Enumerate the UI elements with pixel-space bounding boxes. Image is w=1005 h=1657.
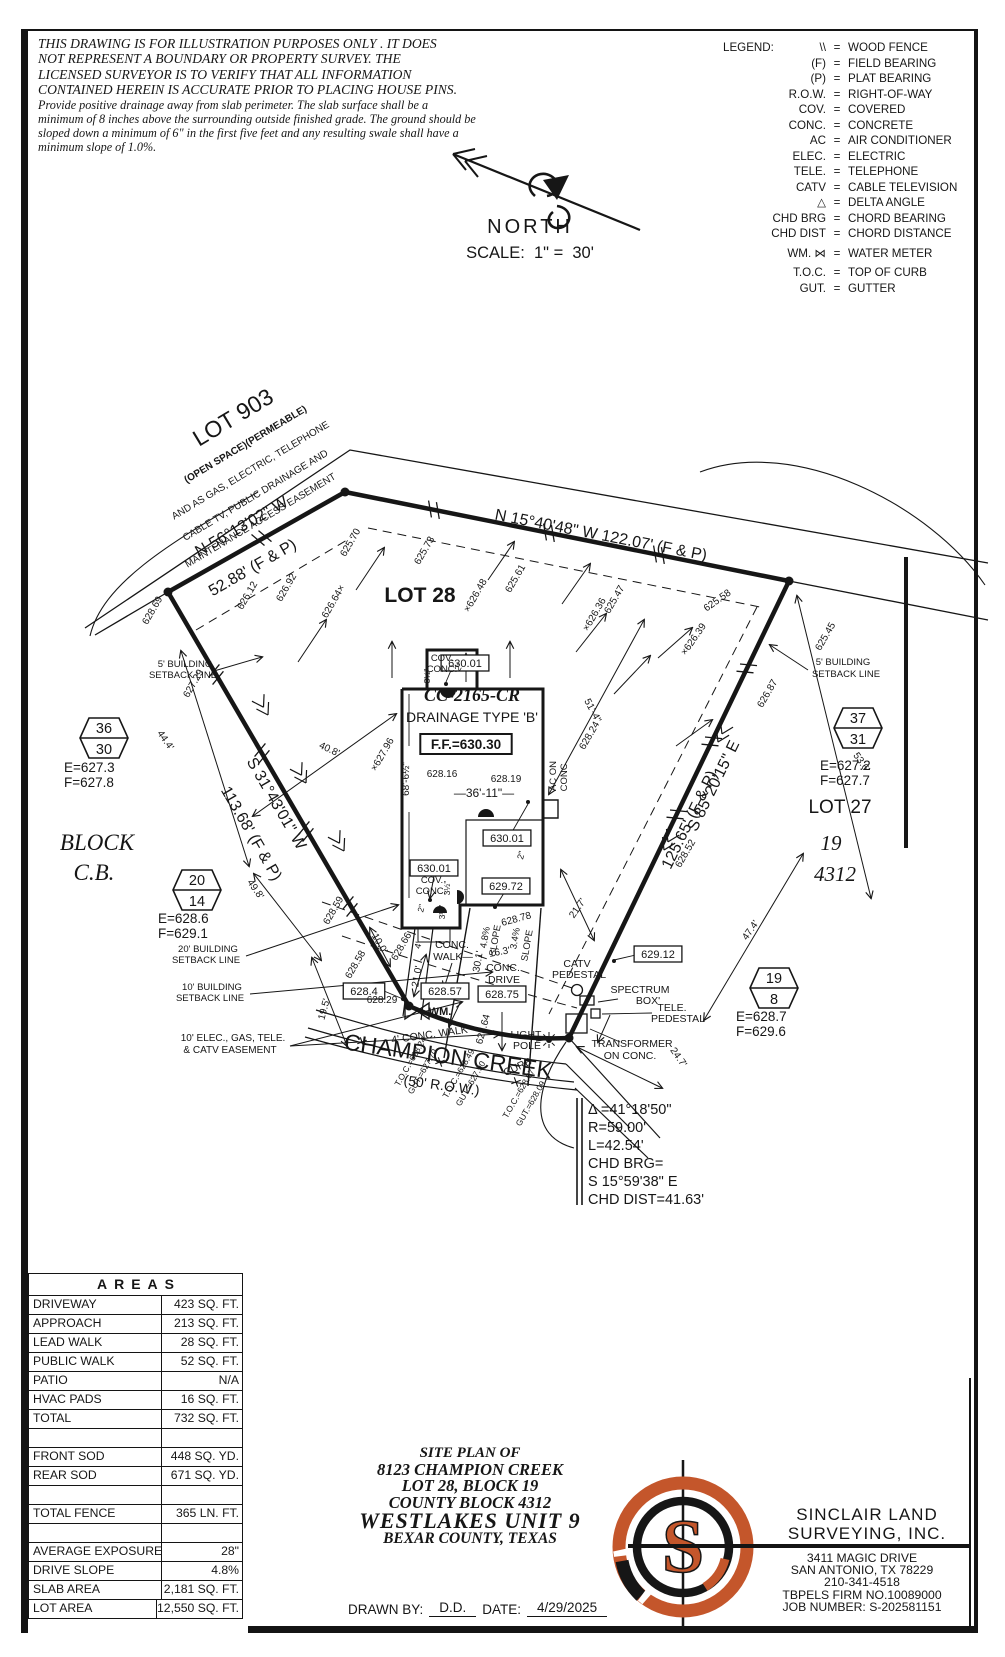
areas-table-row: APPROACH213 SQ. FT. [29,1314,242,1333]
areas-row-label: LOT AREA [29,1600,156,1618]
drawing-line [602,1013,652,1014]
flow-chevron [252,694,274,718]
areas-row-label: SLAB AREA [29,1581,161,1599]
areas-table-row: TOTAL732 SQ. FT. [29,1409,242,1428]
drawing-label: AC ON [548,761,559,791]
drawing-label: 626.64× [320,583,348,620]
elevation-e-label: E=628.6 [158,911,209,926]
drawing-label: 3½" [442,881,452,896]
drawing-label: 10' BUILDING [182,982,242,993]
drawing-label: 2" [415,903,427,913]
drawing-label: SETBACK LINE [176,993,244,1004]
areas-row-label [29,1486,161,1504]
light-pole-icon [546,1037,552,1043]
areas-row-value: 213 SQ. FT. [161,1315,242,1333]
elevation-f-label: F=629.1 [158,926,208,941]
drawing-label: 4312 [814,862,857,886]
drawing-label: 628.16 [427,769,458,780]
drawing-label: 49.8' [244,878,265,902]
drawing-label: 40.8' [317,740,341,759]
flow-chevron [290,762,312,786]
areas-table-row: DRIVEWAY423 SQ. FT. [29,1295,242,1314]
pedestal-icon [572,985,583,996]
drawing-label: 44.4' [154,729,175,753]
areas-row-value [161,1486,242,1504]
drawing-label: & CATV EASEMENT [183,1045,276,1056]
areas-row-label: TOTAL FENCE [29,1505,161,1523]
corner-dot [164,588,173,597]
door-swing-mark [457,890,464,904]
elevation-f-label: F=627.7 [820,773,870,788]
plan-title-line: BEXAR COUNTY, TEXAS [290,1531,650,1548]
elevation-f-label: F=627.8 [64,775,114,790]
drawing-label: 628.29 [367,995,398,1006]
areas-row-value: N/A [161,1372,242,1390]
drawing-arrow [254,874,321,960]
areas-table-row: REAR SOD671 SQ. YD. [29,1466,242,1485]
areas-table-row: TOTAL FENCE365 LN. FT. [29,1504,242,1523]
corner-dot [341,488,350,497]
lot-hex-top: 19 [766,971,782,987]
drawing-label: CONC. [559,761,570,792]
areas-row-value: 732 SQ. FT. [161,1410,242,1428]
drawing-label: CHD BRG= [588,1156,663,1172]
areas-table-row: HVAC PADS16 SQ. FT. [29,1390,242,1409]
drawing-arrow [676,720,712,746]
drawing-label: SETBACK LINE [172,955,240,966]
drawing-label: 10' ELEC., GAS, TELE. [181,1033,286,1044]
boxed-elevation-text: 628.75 [485,989,519,1001]
elevation-e-label: E=627.3 [64,760,115,775]
areas-table-row [29,1428,242,1447]
areas-row-value: 28" [161,1543,242,1561]
drawing-label: 3½" [437,905,447,920]
drawing-label: BLOCK [60,830,136,855]
areas-table-row: PATION/A [29,1371,242,1390]
firm-address-line: JOB NUMBER: S-202581151 [742,1601,982,1613]
firm-address-line: 210-341-4518 [742,1576,982,1588]
drawing-label: 628.69 [140,594,165,626]
drawing-label: CHD DIST=41.63' [588,1192,704,1208]
drawing-label: LOT 27 [808,797,871,818]
drawing-label: TRANSFORMER [591,1038,673,1050]
firm-name: SINCLAIR LANDSURVEYING, INC. [752,1506,982,1543]
drawing-label: LOT 28 [384,584,456,607]
lot-hex-top: 37 [850,711,866,727]
areas-table-row [29,1485,242,1504]
drawing-label: 628.64 [474,1013,493,1046]
boxed-elevation-text: 629.72 [489,881,523,893]
drawing-label: 628.59 [321,894,346,926]
lot-hex-top: 36 [96,721,112,737]
door-swing-mark [478,809,494,817]
drawing-label: 626.92 [274,571,299,603]
drawing-label: S 15°59'38" E [588,1174,678,1190]
areas-table-row: DRIVE SLOPE4.8% [29,1561,242,1580]
drawing-label: 3.4% [508,926,523,950]
areas-row-label: DRIVE SLOPE [29,1562,161,1580]
drawing-label: CONC. [435,939,469,951]
drawing-label: 628.58 [343,948,368,980]
spot-dot [493,905,497,909]
boxed-elevation-text: 630.01 [417,863,451,875]
drawing-arrow [298,620,326,662]
plan-title-line: SITE PLAN OF [290,1445,650,1461]
areas-row-value: 671 SQ. YD. [161,1467,242,1485]
drawing-label: PEDESTAL [651,1013,705,1025]
drawing-line [512,804,528,832]
areas-row-label: TOTAL [29,1410,161,1428]
lot-hex-bottom: 8 [770,992,778,1008]
areas-row-label: LEAD WALK [29,1334,161,1352]
spot-dot [428,898,432,902]
drawing-label: 68'-6½" [401,762,412,796]
elevation-f-label: F=629.6 [736,1024,786,1039]
drawing-label: 626.87 [755,677,780,709]
drawing-label: 47.4' [740,919,761,943]
areas-row-label: AVERAGE EXPOSURE [29,1543,161,1561]
areas-table-row: SLAB AREA2,181 SQ. FT. [29,1580,242,1599]
drawing-label: PEDESTAL [552,969,606,981]
drawing-arrow [356,548,384,590]
elevation-e-label: E=628.7 [736,1009,787,1024]
light-pole-ray [552,1043,555,1046]
boxed-elevation-text: 628.57 [428,986,462,998]
drawing-label: 2" [515,850,527,861]
drawing-label: 3½" [422,669,432,684]
drawing-label: 30.1' [471,950,486,973]
lot-hex-bottom: 14 [189,894,205,910]
firm-address: 3411 MAGIC DRIVESAN ANTONIO, TX 78229210… [742,1552,982,1613]
drawing-label: 625.73 [412,534,437,566]
corner-dot [565,1034,574,1043]
spot-dot [612,959,616,963]
drawing-arrow [614,656,650,694]
date-value: 4/29/2025 [527,1600,607,1617]
areas-table-row [29,1523,242,1542]
areas-row-value: 16 SQ. FT. [161,1391,242,1409]
drawing-label: ×626.39 [679,621,709,658]
areas-row-label [29,1524,161,1542]
drawn-by-value: D.D. [429,1600,476,1617]
plan-title-line: WESTLAKES UNIT 9 [290,1511,650,1531]
drawing-label: ON CONC. [604,1050,657,1062]
drawing-label: 5' BUILDING [158,659,213,670]
drawn-by-row: DRAWN BY: D.D. DATE: 4/29/2025 [348,1600,613,1617]
drawing-line [566,1064,630,1128]
drawing-label: CC-2165-CR [424,685,520,705]
spot-dot [526,800,530,804]
areas-row-label [29,1429,161,1447]
areas-row-value: 4.8% [161,1562,242,1580]
light-pole-ray [543,1043,546,1046]
drawing-label: 21.7' [567,897,588,921]
drawing-label: COV. [431,653,453,664]
utility-box-icon [591,1009,600,1018]
areas-table-row: AVERAGE EXPOSURE28" [29,1542,242,1561]
areas-row-label: DRIVEWAY [29,1296,161,1314]
areas-row-value [161,1429,242,1447]
areas-table-row: FRONT SOD448 SQ. YD. [29,1447,242,1466]
drawing-label: COV. [421,875,443,886]
firm-name-line: SINCLAIR LAND [752,1506,982,1525]
corner-dot [785,577,794,586]
spot-dot [401,997,405,1001]
areas-row-value: 12,550 SQ. FT. [156,1600,242,1618]
areas-row-label: APPROACH [29,1315,161,1333]
drawing-label: ×627.96 [369,736,397,773]
drawing-label: 20' BUILDING [178,944,238,955]
drawing-label: 19.5' [317,998,333,1022]
drawing-label: 5' BUILDING [816,657,871,668]
drawing-label: —36'-11"— [454,786,514,800]
lot-hex-top: 20 [189,873,205,889]
areas-row-label: HVAC PADS [29,1391,161,1409]
areas-table-row: LOT AREA12,550 SQ. FT. [29,1599,242,1618]
boxed-elevation-text: F.F.=630.30 [431,737,501,752]
firm-name-line: SURVEYING, INC. [752,1525,982,1544]
drawing-line [789,581,988,620]
areas-row-value: 28 SQ. FT. [161,1334,242,1352]
plan-title-block: SITE PLAN OF8123 CHAMPION CREEKLOT 28, B… [290,1445,650,1547]
drawing-arrow [770,645,808,670]
drawing-line [598,999,618,1002]
areas-row-value [161,1524,242,1542]
areas-row-label: FRONT SOD [29,1448,161,1466]
drawn-by-label: DRAWN BY: [348,1602,423,1617]
drawing-label: WALK— [433,951,473,963]
areas-row-value: 423 SQ. FT. [161,1296,242,1314]
drawing-label: DRAINAGE TYPE 'B' [406,709,538,725]
drawing-arrow [214,657,262,671]
lot-hex-bottom: 30 [96,742,112,758]
drawing-label: CONC. [486,962,520,974]
drawing-label: 24.7' [667,1046,688,1070]
drawing-label: 625.45 [813,620,838,652]
areas-row-value: 448 SQ. YD. [161,1448,242,1466]
drawing-arrow [488,542,514,580]
areas-table-rows: DRIVEWAY423 SQ. FT.APPROACH213 SQ. FT.LE… [29,1295,242,1618]
drawing-label: R=59.00' [588,1120,646,1136]
firm-divider-line [628,1544,970,1548]
drawing-label: SETBACK LINE [812,669,880,680]
drawing-label: C.B. [74,860,115,885]
areas-row-value: 2,181 SQ. FT. [161,1581,242,1599]
drawing-label: LOT 903 [188,383,278,451]
site-plan-sheet: THIS DRAWING IS FOR ILLUSTRATION PURPOSE… [0,0,1005,1657]
drawing-path [700,462,985,585]
date-label: DATE: [482,1602,521,1617]
firm-address-line: TBPELS FIRM NO.10089000 [742,1589,982,1601]
drawing-label: SETBACK LINE [149,670,217,681]
boxed-elevation-text: 629.12 [641,949,675,961]
areas-row-label: PUBLIC WALK [29,1353,161,1371]
flow-chevron [328,830,350,854]
areas-table-title: AREAS [29,1274,242,1295]
boxed-elevation-text: 630.01 [490,833,524,845]
areas-row-label: PATIO [29,1372,161,1390]
drawing-label: POLE [513,1040,541,1052]
drawing-label: WM. [429,1006,452,1018]
drawing-label: ×626.48 [462,577,490,614]
drawing-label: N 15°40'48" W 122.07' (F & P) [493,507,708,565]
areas-table-row: LEAD WALK28 SQ. FT. [29,1333,242,1352]
drawing-label: DRIVE [488,974,520,986]
lot-hex-bottom: 31 [850,732,866,748]
areas-table: AREAS DRIVEWAY423 SQ. FT.APPROACH213 SQ.… [28,1273,243,1619]
drawing-label: 628.78 [500,910,533,929]
areas-table-row: PUBLIC WALK52 SQ. FT. [29,1352,242,1371]
drawing-label: L=42.54' [588,1138,644,1154]
drawing-line [543,800,558,818]
drawing-label: 19 [821,831,843,855]
drawing-label: Δ =41°18'50" [588,1102,671,1118]
areas-row-value: 365 LN. FT. [161,1505,242,1523]
drawing-label: 625.47 [602,583,627,615]
areas-row-value: 52 SQ. FT. [161,1353,242,1371]
areas-row-label: REAR SOD [29,1467,161,1485]
drawing-label: 628.19 [491,774,522,785]
drawing-label: 625.61 [503,562,528,594]
